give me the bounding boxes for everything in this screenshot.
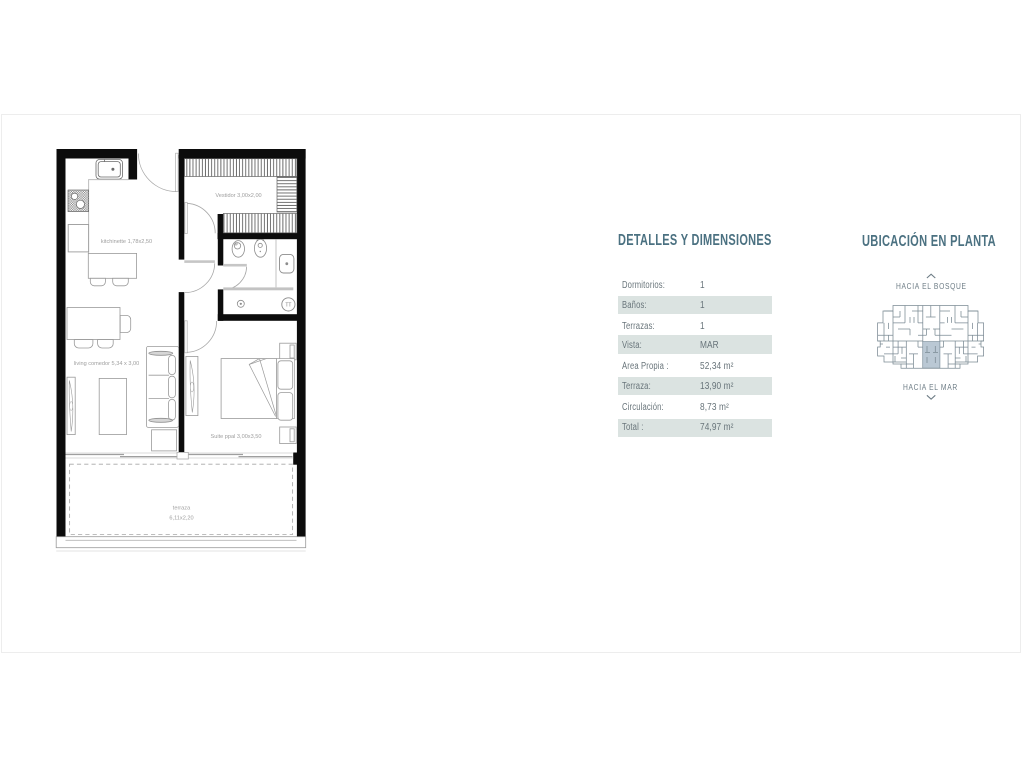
svg-text:Suite ppal 3,00x3,50: Suite ppal 3,00x3,50 — [210, 434, 261, 440]
svg-text:Vestidor 3,00x2,00: Vestidor 3,00x2,00 — [215, 193, 261, 199]
svg-text:TT: TT — [285, 302, 291, 308]
svg-text:terraza: terraza — [173, 506, 191, 512]
svg-text:living comedor 5,34 x 3,00: living comedor 5,34 x 3,00 — [74, 361, 139, 367]
svg-text:kitchinette 1,78x2,50: kitchinette 1,78x2,50 — [101, 239, 152, 245]
svg-text:6,11x2,20: 6,11x2,20 — [169, 516, 193, 522]
